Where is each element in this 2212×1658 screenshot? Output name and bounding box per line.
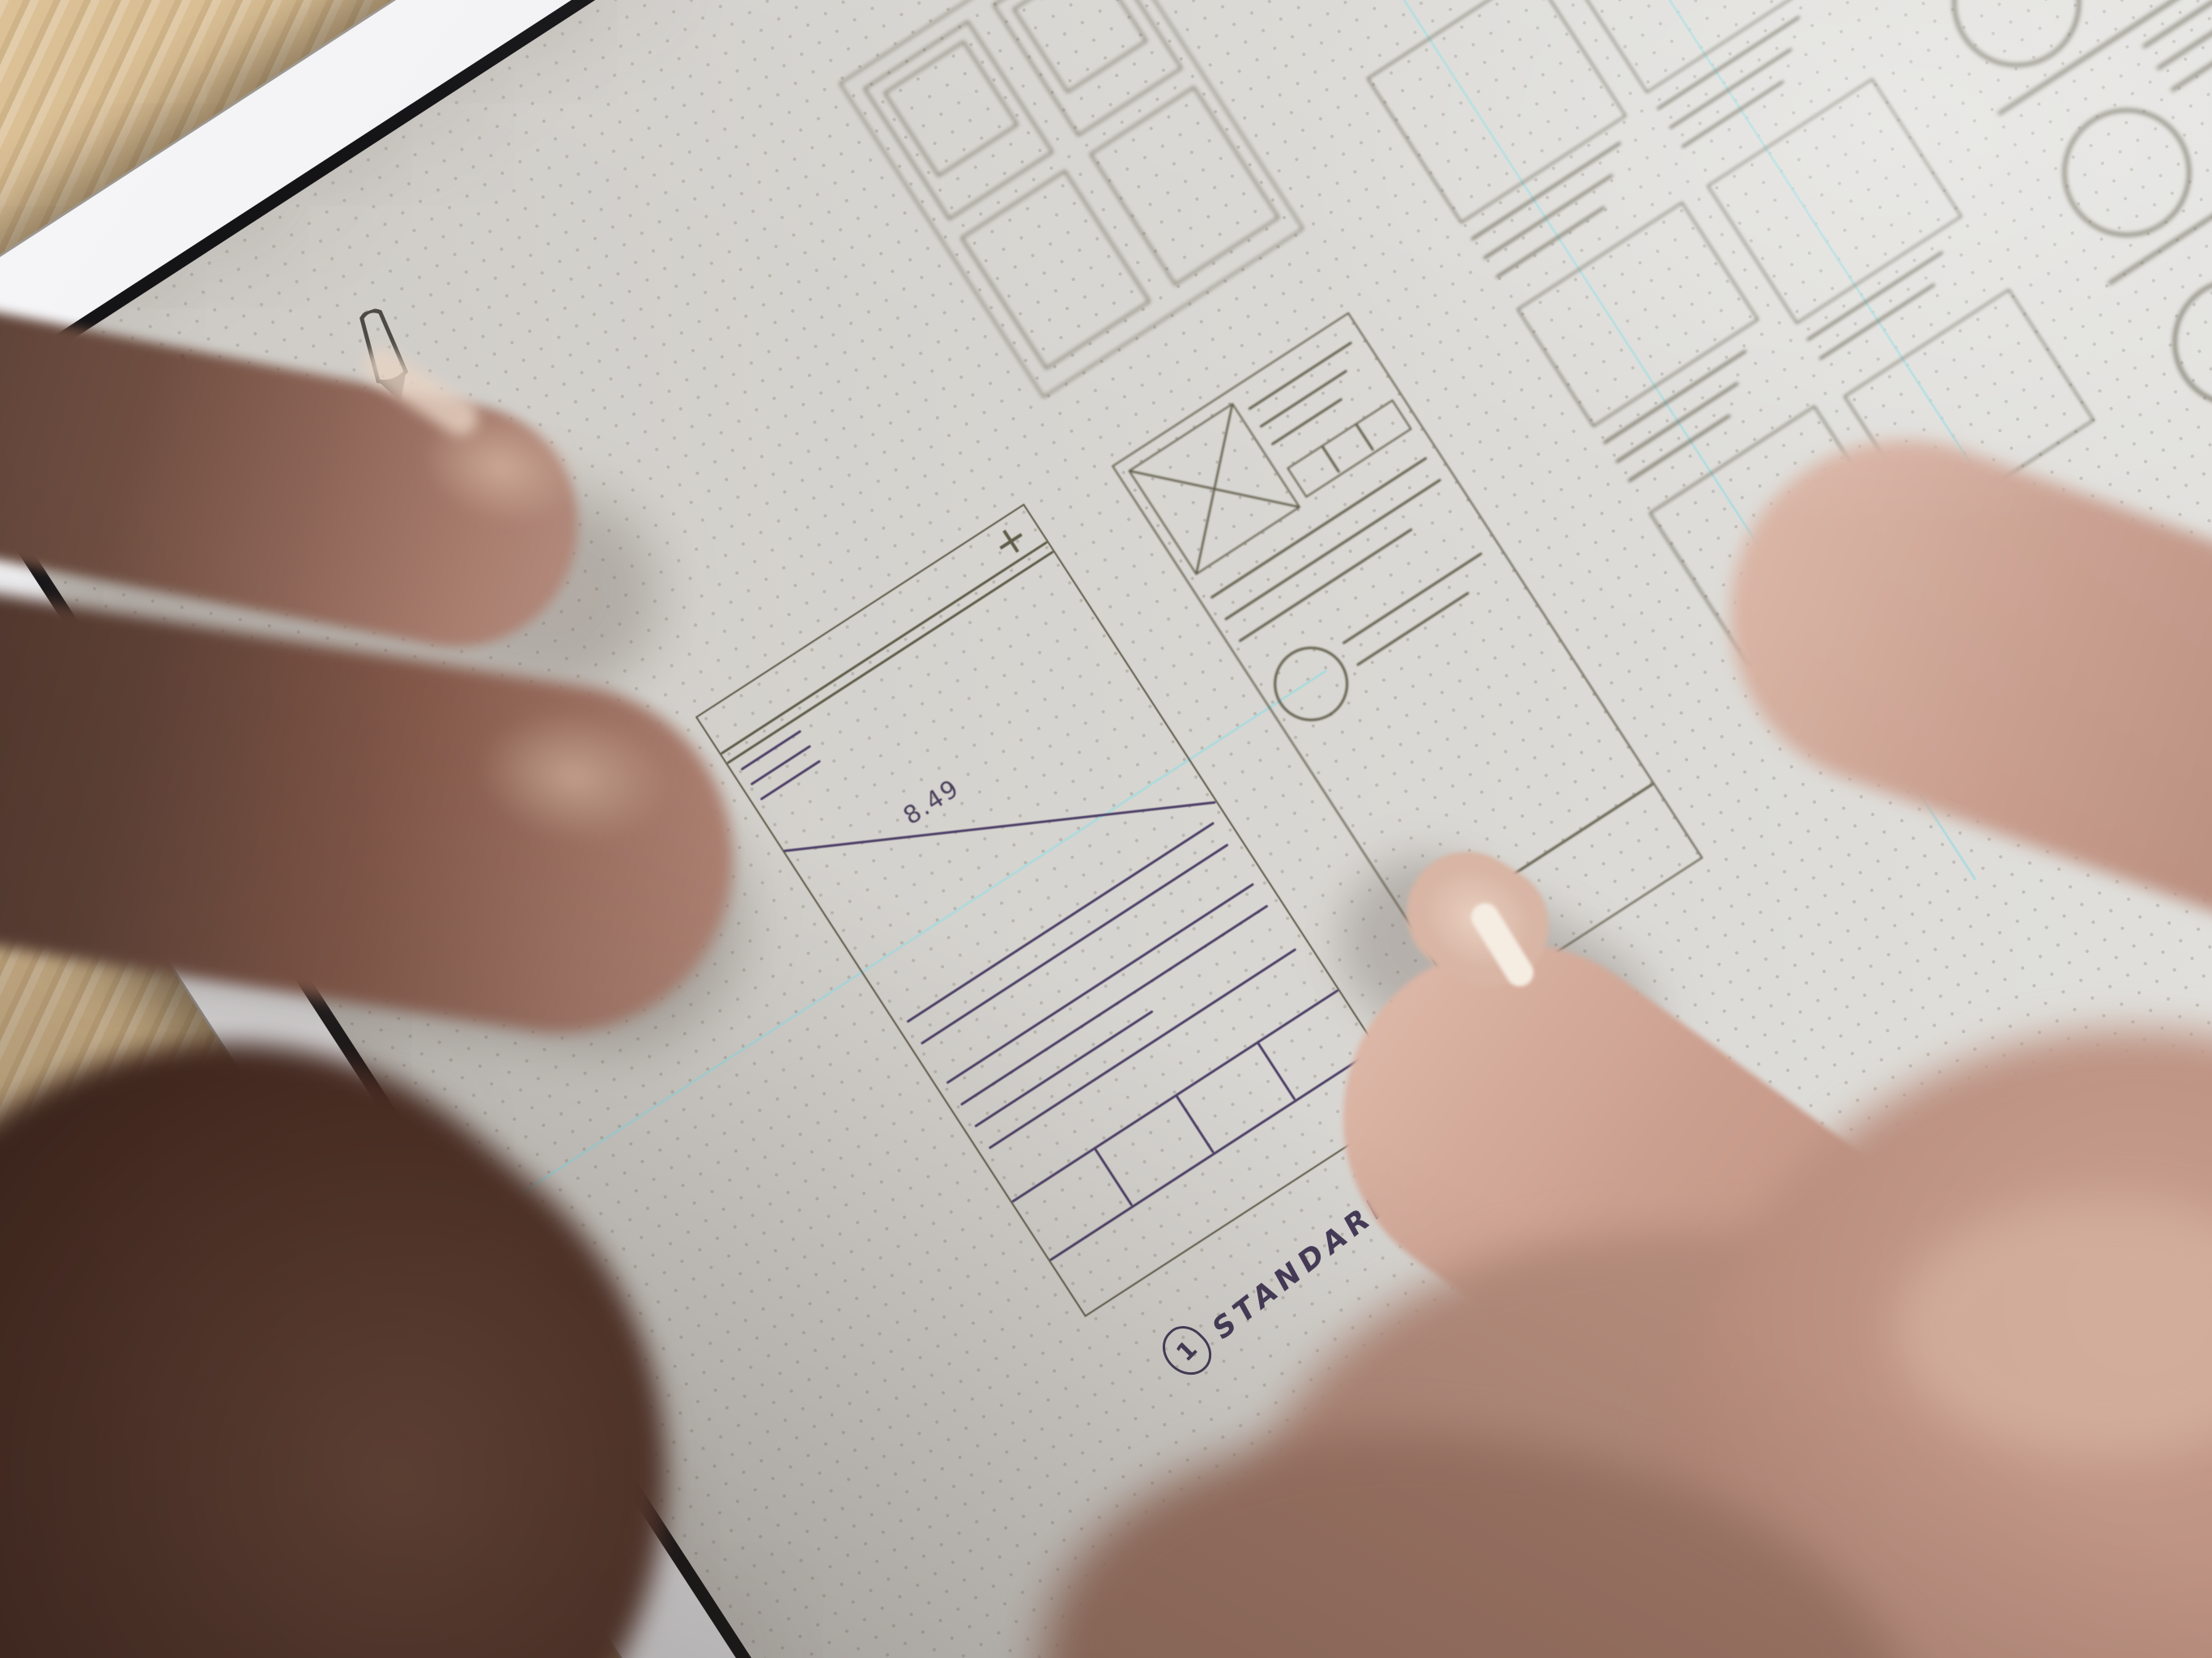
- circled-number: 1: [1153, 1317, 1220, 1384]
- hamburger-icon: [751, 745, 811, 785]
- sketch-text-line: [989, 948, 1297, 1150]
- sketch-text-line: [946, 883, 1254, 1085]
- sketch-text-line: [974, 1010, 1153, 1128]
- segmented-row: [1287, 399, 1412, 498]
- diagonal-measure-line: [784, 801, 1216, 852]
- sketch-line: [726, 551, 1053, 764]
- sketch-text-line: [1681, 80, 1784, 148]
- sketch-text-line: [921, 844, 1229, 1045]
- artboard-card-grid[interactable]: [839, 0, 1304, 398]
- photo-of-tablet-sketching: + 8.49: [0, 0, 2212, 1658]
- avatar-circle: [2149, 254, 2212, 432]
- card-rect: [1707, 78, 1963, 324]
- avatar-circle: [1928, 0, 2105, 91]
- avatar-circle: [1260, 632, 1363, 735]
- sketch-text-line: [1238, 528, 1412, 642]
- tabbar-divider: [1256, 1041, 1295, 1101]
- plus-glyph: +: [985, 514, 1036, 567]
- sketch-text-line: [1356, 592, 1470, 666]
- image-placeholder: [1128, 402, 1300, 575]
- sketch-text-line: [906, 822, 1214, 1023]
- sketch-text-line: [2156, 0, 2212, 70]
- hamburger-icon: [760, 759, 821, 800]
- tabbar-divider: [1175, 1094, 1214, 1154]
- measurement-label: 8.49: [899, 774, 965, 831]
- sketch-text-line: [1259, 369, 1347, 427]
- sketch-text-line: [960, 904, 1269, 1106]
- sketch-header-rule: [721, 541, 1048, 755]
- tabbar-divider: [1093, 1146, 1133, 1206]
